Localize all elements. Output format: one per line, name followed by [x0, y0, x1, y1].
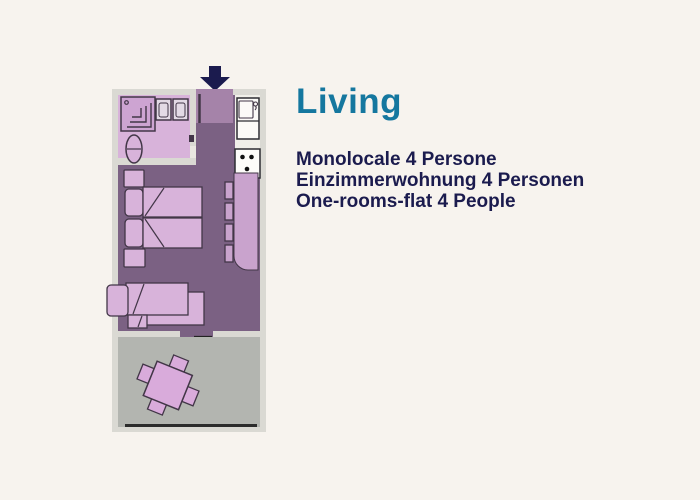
pillow-icon	[125, 219, 143, 247]
description-line-german: Einzimmerwohnung 4 Personen	[296, 171, 584, 192]
door-hinge-icon	[189, 135, 194, 142]
bathroom-sink-icon	[156, 99, 171, 120]
description-line-english: One-rooms-flat 4 People	[296, 192, 584, 213]
pillow-icon	[125, 189, 143, 216]
pillow-icon	[107, 285, 128, 316]
kitchen-sink-icon	[237, 98, 259, 139]
toilet-icon	[126, 135, 142, 163]
description: Monolocale 4 Persone Einzimmerwohnung 4 …	[296, 150, 584, 212]
page-title: Living	[296, 82, 402, 122]
terrace-door-icon	[180, 328, 213, 338]
entrance-arrow-icon	[200, 66, 230, 91]
floor-plan	[98, 60, 280, 442]
bidet-icon	[173, 99, 188, 120]
description-line-italian: Monolocale 4 Persone	[296, 150, 584, 171]
bathroom	[118, 95, 196, 165]
terrace	[118, 337, 260, 427]
page: Living Monolocale 4 Persone Einzimmerwoh…	[0, 0, 700, 500]
entry-door-icon	[196, 89, 233, 123]
shower-icon	[121, 97, 155, 131]
nightstand-icon	[124, 170, 144, 187]
nightstand-icon	[124, 249, 145, 267]
